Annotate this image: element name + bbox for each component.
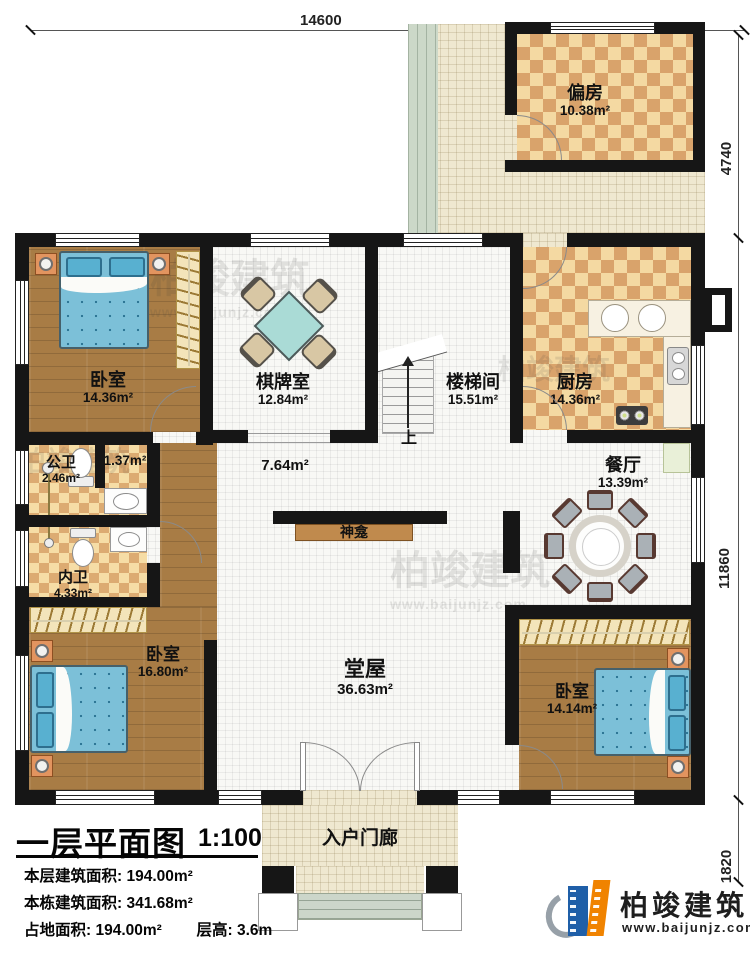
drawing-scale: 1:100 <box>198 824 262 853</box>
room-label-bedroom3: 卧室 14.14m² <box>527 682 617 716</box>
room-label-sideroom: 偏房 10.38m² <box>535 83 635 118</box>
room-area: 36.63m² <box>310 682 420 699</box>
entrance-door-gap <box>303 790 417 805</box>
wall-segment <box>691 425 705 477</box>
kitchen-basin <box>638 304 666 332</box>
stat-line: 占地面积: 194.00m² 层高: 3.6m <box>24 918 272 940</box>
room-area: 10.38m² <box>535 103 635 118</box>
toilet-bowl <box>72 539 94 567</box>
wall-segment <box>15 233 29 280</box>
room-label-dining: 餐厅 13.39m² <box>578 455 668 490</box>
wall-segment <box>147 443 160 520</box>
porch-pillar <box>426 866 458 893</box>
wall-segment <box>15 365 29 450</box>
room-label-gongwei: 公卫 2.46m² <box>30 455 92 485</box>
room-name: 堂屋 <box>310 658 420 682</box>
bed <box>59 251 149 349</box>
wall-segment <box>140 233 250 247</box>
floor-plan-canvas: 14600 4740 11860 1820 偏房 10.38m² 柏竣建筑 ww… <box>0 0 750 953</box>
room-label-stair: 楼梯间 15.51m² <box>438 372 508 407</box>
wall-segment <box>29 597 160 607</box>
vanity <box>104 488 147 514</box>
room-area: 1.37m² <box>100 453 150 468</box>
wall-segment <box>15 505 29 530</box>
window <box>55 790 155 805</box>
room-label-bedroom1: 卧室 14.36m² <box>58 370 158 405</box>
window <box>250 233 330 247</box>
window <box>55 233 140 247</box>
wall-segment <box>567 430 691 443</box>
pillow <box>668 675 686 711</box>
wall-segment <box>155 790 218 805</box>
wall-segment <box>15 587 29 655</box>
dimension-right-bottom-value: 1820 <box>718 850 735 883</box>
room-area: 2.46m² <box>30 472 92 485</box>
wall-segment <box>29 515 160 527</box>
room-name: 公卫 <box>30 455 92 472</box>
pillow <box>36 672 54 708</box>
sink-bowl <box>672 352 685 364</box>
room-label-bedroom2: 卧室 16.80m² <box>118 645 208 679</box>
wall-segment <box>500 790 550 805</box>
room-name: 卧室 <box>118 645 208 664</box>
watermark: 柏竣建筑 www.baijunjz.com <box>390 538 550 612</box>
wall-segment <box>273 511 447 524</box>
nightstand <box>667 756 689 778</box>
stove <box>616 406 648 425</box>
wardrobe <box>519 619 690 645</box>
brand-logo-icon <box>546 878 616 944</box>
floor-drain <box>44 538 54 548</box>
window <box>403 233 483 247</box>
bed-sheet <box>56 667 72 751</box>
up-text: 上 <box>398 430 420 448</box>
flue-inner <box>712 295 725 325</box>
window <box>550 22 655 34</box>
window <box>15 450 29 505</box>
stat-value: 194.00m² <box>126 868 192 885</box>
room-name: 棋牌室 <box>228 372 338 392</box>
basin-bowl <box>118 532 140 547</box>
wall-segment <box>213 430 248 443</box>
nightstand <box>35 253 57 275</box>
stat-label: 本层建筑面积: <box>24 868 122 885</box>
dimension-right-top-value: 4740 <box>718 142 735 175</box>
dimension-right-middle-value: 11860 <box>716 548 733 589</box>
wall-segment <box>365 240 378 443</box>
chair <box>544 533 564 559</box>
wall-segment <box>330 430 378 443</box>
window <box>691 477 705 563</box>
bed-sheet <box>61 277 147 293</box>
room-area: 14.14m² <box>527 701 617 716</box>
porch-pillar <box>262 866 294 893</box>
kitchen-sink <box>667 347 689 385</box>
pillow <box>109 257 145 277</box>
wardrobe <box>176 251 200 369</box>
wall-segment <box>200 240 213 445</box>
window <box>691 345 705 425</box>
wall-segment <box>691 233 705 345</box>
dining-table <box>569 515 631 577</box>
stat-line: 本栋建筑面积: 341.68m² <box>24 891 193 913</box>
porch-pillar-base <box>422 893 462 931</box>
window <box>218 790 262 805</box>
door-leaf <box>300 742 306 791</box>
sideroom-wall <box>505 160 705 172</box>
wall-segment <box>29 432 153 445</box>
wall-segment <box>417 790 457 805</box>
pillow <box>36 712 54 748</box>
stairs-arrow-line <box>407 364 409 428</box>
nightstand <box>31 755 53 777</box>
window <box>15 280 29 365</box>
stat-line: 本层建筑面积: 194.00m² <box>24 864 193 886</box>
room-area: 15.51m² <box>438 392 508 407</box>
room-label-neiwei: 内卫 4.33m² <box>42 570 104 600</box>
nightstand <box>148 253 170 275</box>
logo-building-blue <box>568 886 588 936</box>
window <box>15 530 29 587</box>
wall-segment <box>15 790 55 805</box>
chair <box>636 533 656 559</box>
porch-label: 入户门廊 <box>308 828 412 849</box>
kitchen-door-gap <box>523 233 567 247</box>
pillow <box>66 257 102 277</box>
room-name: 楼梯间 <box>438 372 508 392</box>
wall-segment <box>505 605 691 619</box>
window <box>550 790 635 805</box>
stat-value: 3.6m <box>237 922 272 939</box>
chair <box>587 490 613 510</box>
shrine-label: 神龛 <box>322 525 386 541</box>
stairs-arrow-head <box>402 356 414 366</box>
stairs-up-label: 上 <box>398 430 420 448</box>
wall-segment <box>505 605 519 745</box>
window <box>15 655 29 751</box>
room-name: 餐厅 <box>578 455 668 475</box>
wall-segment <box>635 790 705 805</box>
dimension-line-right <box>738 35 739 883</box>
wall-segment <box>691 563 705 805</box>
porch-steps <box>298 893 422 920</box>
stat-value: 194.00m² <box>95 922 161 939</box>
stat-value: 341.68m² <box>126 895 192 912</box>
room-name: 内卫 <box>42 570 104 587</box>
room-label-chess: 棋牌室 12.84m² <box>228 372 338 407</box>
area-label-corridor: 7.64m² <box>245 458 325 475</box>
wardrobe <box>30 607 147 633</box>
bed <box>30 665 128 753</box>
chair <box>587 582 613 602</box>
wall-segment <box>262 790 303 805</box>
stat-label: 占地面积: <box>24 922 91 939</box>
room-area: 16.80m² <box>118 664 208 679</box>
room-label-hall: 堂屋 36.63m² <box>310 658 420 698</box>
brand-website: www.baijunjz.com <box>622 920 750 935</box>
area-label-niche: 1.37m² <box>100 453 150 468</box>
room-area: 14.36m² <box>58 390 158 405</box>
wall-segment <box>204 640 217 790</box>
dimension-top-value: 14600 <box>300 12 342 29</box>
kitchen-basin <box>601 304 629 332</box>
wall-segment <box>503 511 520 573</box>
title-underline <box>16 855 258 858</box>
bed-sheet <box>649 670 665 754</box>
room-name: 入户门廊 <box>308 828 412 849</box>
nightstand <box>667 648 689 670</box>
stat-label: 本栋建筑面积: <box>24 895 122 912</box>
wall-segment <box>567 233 705 247</box>
stat-label: 层高: <box>196 922 232 939</box>
vanity <box>110 527 147 552</box>
stove-burner <box>634 410 645 421</box>
window <box>457 790 500 805</box>
nightstand <box>31 640 53 662</box>
door-leaf <box>414 742 420 791</box>
watermark-text: 柏竣建筑 <box>390 549 550 593</box>
sink-bowl <box>672 368 685 380</box>
logo-building-orange <box>587 880 611 936</box>
room-name: 卧室 <box>58 370 158 390</box>
brand-name: 柏竣建筑 <box>620 884 748 924</box>
courtyard-walkway <box>408 24 438 233</box>
wall-segment <box>196 432 213 445</box>
sideroom-wall <box>693 22 705 172</box>
room-area: 13.39m² <box>578 475 668 490</box>
room-name: 卧室 <box>527 682 617 701</box>
basin-bowl <box>113 493 139 510</box>
stove-burner <box>619 410 630 421</box>
room-name: 偏房 <box>535 83 635 103</box>
dining-table-inner <box>582 528 620 566</box>
porch-floor <box>296 866 424 893</box>
wall-segment <box>510 240 523 443</box>
pillow <box>668 715 686 751</box>
room-area: 12.84m² <box>228 392 338 407</box>
shrine-text: 神龛 <box>322 525 386 541</box>
room-area: 7.64m² <box>245 458 325 475</box>
toilet-tank <box>70 528 96 538</box>
sideroom-wall <box>505 22 517 115</box>
opening-threshold <box>248 433 330 443</box>
wall-segment <box>95 443 105 488</box>
